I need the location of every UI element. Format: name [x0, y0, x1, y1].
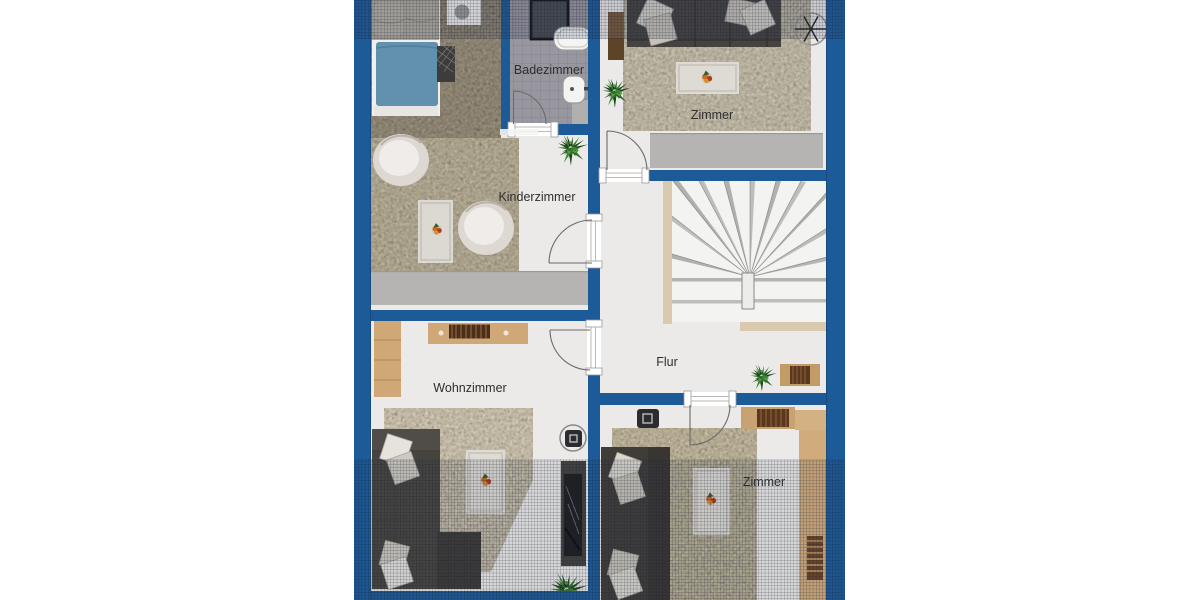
svg-text:Badezimmer: Badezimmer	[514, 63, 584, 77]
svg-text:Wohnzimmer: Wohnzimmer	[433, 381, 506, 395]
svg-text:Zimmer: Zimmer	[691, 108, 733, 122]
svg-text:Kinderzimmer: Kinderzimmer	[498, 190, 575, 204]
svg-text:Flur: Flur	[656, 355, 678, 369]
